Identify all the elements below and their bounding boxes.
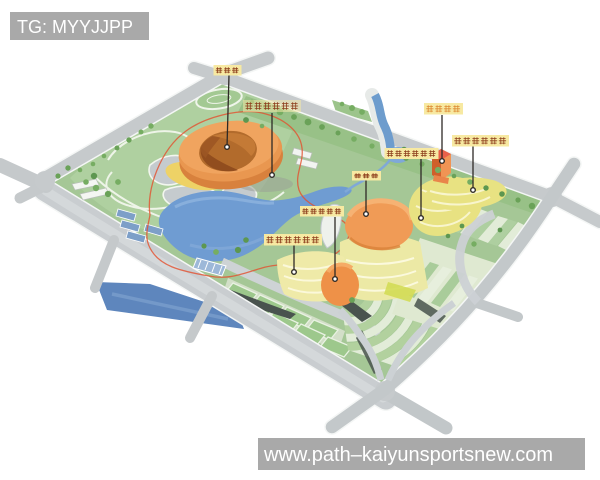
svg-text:www.path–kaiyunsportsnew.com: www.path–kaiyunsportsnew.com bbox=[263, 444, 553, 466]
svg-text:TG: MYYJJPP: TG: MYYJJPP bbox=[17, 17, 133, 37]
